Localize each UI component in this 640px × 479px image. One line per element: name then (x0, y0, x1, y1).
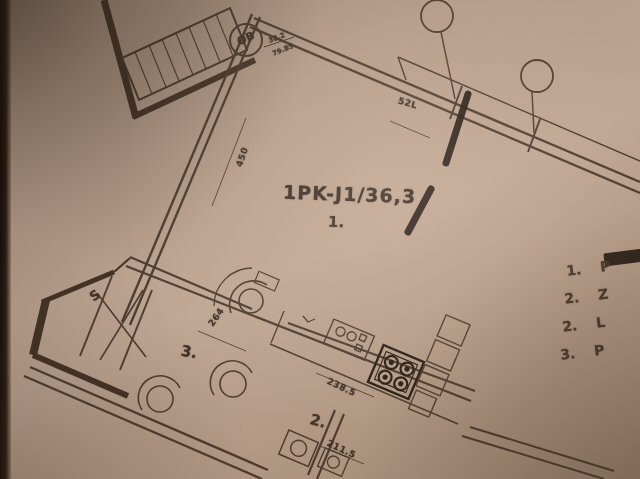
southwest-wall (24, 367, 268, 479)
floorplan-drawing: OB 38.2 79.85 52L 450 1PK-J1/36,3 1. 264… (0, 0, 640, 479)
stair-hatch (135, 14, 233, 94)
legend-text: L (595, 314, 606, 331)
washbasin-icon (279, 430, 319, 466)
legend-text: P (599, 258, 611, 275)
bidet-icon (210, 361, 252, 397)
balloon-marker-1 (421, 0, 455, 99)
hall-wall (126, 257, 475, 401)
floorplan-photo: OB 38.2 79.85 52L 450 1PK-J1/36,3 1. 264… (0, 0, 640, 479)
legend-text: Z (597, 286, 609, 303)
kitchen-cabinets (407, 315, 470, 418)
toilet-top-icon (230, 271, 280, 313)
west-wall (122, 14, 260, 325)
room-label-living: 1. (328, 213, 345, 232)
balcony-edge (398, 57, 640, 161)
north-wall (250, 18, 640, 193)
unit-title: 1PK-J1/36,3 (283, 181, 417, 208)
marker-strokes (408, 94, 468, 232)
toilet-left-icon (138, 376, 180, 412)
photo-paper-edge (0, 0, 11, 479)
legend-text: P (593, 342, 605, 359)
plan-linework (0, 0, 640, 479)
room-label-bathroom: 3. (180, 342, 199, 363)
kitchen-fitting-icon (303, 316, 315, 322)
southeast-wall (462, 427, 614, 479)
